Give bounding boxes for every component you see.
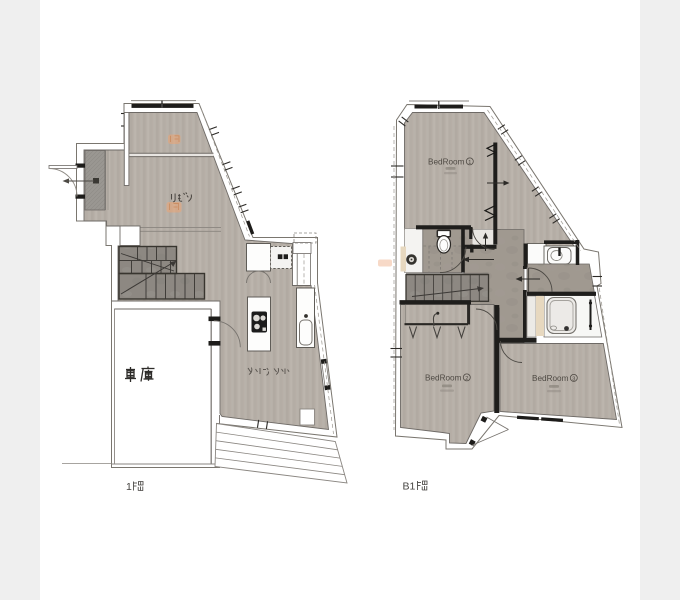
svg-text:1: 1 [468,160,471,166]
svg-text:BedRoom: BedRoom [428,158,465,167]
svg-text:1: 1 [126,481,132,493]
svg-text:B1: B1 [403,481,416,493]
svg-text:BedRoom: BedRoom [532,374,569,383]
svg-text:2: 2 [465,376,468,382]
svg-text:BedRoom: BedRoom [425,374,462,383]
svg-text:3: 3 [572,376,575,382]
